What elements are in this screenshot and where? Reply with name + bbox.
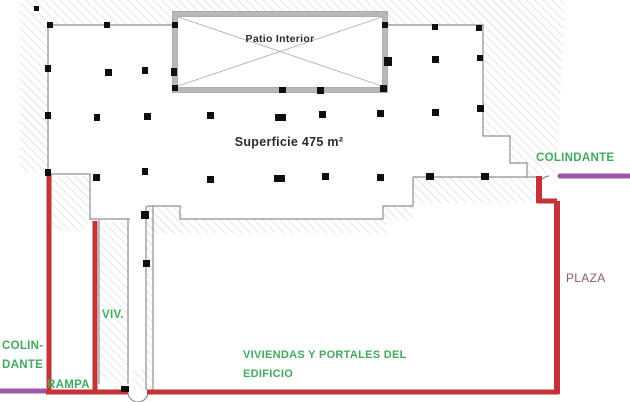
label-viv: VIV.	[102, 309, 124, 321]
structural-column	[105, 69, 112, 76]
structural-column	[104, 22, 110, 28]
structural-column	[476, 25, 482, 31]
hatch-viv-wall-band	[100, 222, 128, 390]
structural-column	[426, 173, 434, 180]
structural-column	[477, 55, 483, 61]
structural-column	[207, 176, 214, 183]
label-patio-interior: Patio Interior	[246, 33, 315, 45]
structural-column	[377, 110, 384, 117]
label-colindante-right: COLINDANTE	[536, 152, 614, 164]
structural-column	[384, 57, 392, 66]
structural-column	[142, 168, 148, 175]
structural-column	[432, 56, 439, 63]
structural-column	[45, 112, 51, 119]
hatch-mid-wall-jamb	[132, 370, 155, 390]
hatch-lower-band-main	[180, 219, 386, 233]
patio-interior-box	[173, 12, 388, 93]
structural-column	[279, 87, 286, 93]
structural-column	[319, 111, 326, 118]
structural-column	[144, 113, 151, 120]
structural-column	[432, 24, 438, 30]
floor-plan-stage: Patio InteriorSuperficie 475 m²COLINDANT…	[0, 0, 630, 402]
label-viviendas-line2: EDIFICIO	[243, 368, 293, 380]
structural-column	[275, 114, 286, 121]
structural-column	[93, 174, 100, 181]
structural-column	[45, 169, 51, 176]
structural-column	[481, 173, 489, 180]
label-colindante-left-line1: COLIN-	[2, 340, 43, 352]
patio-box-wall	[175, 14, 385, 90]
structural-column	[274, 175, 285, 182]
structural-column	[34, 6, 39, 11]
structural-column	[380, 85, 387, 92]
structural-column	[121, 386, 129, 392]
structural-column	[143, 260, 150, 267]
label-superficie: Superficie 475 m²	[235, 135, 344, 149]
label-colindante-left-line2: DANTE	[2, 359, 43, 371]
structural-column	[172, 85, 178, 91]
structural-column	[142, 67, 148, 74]
structural-column	[172, 22, 178, 28]
label-plaza: PLAZA	[566, 271, 606, 285]
structural-column	[477, 105, 484, 112]
structural-column	[207, 112, 214, 119]
structural-column	[171, 68, 177, 76]
label-rampa: RAMPA	[47, 379, 90, 391]
structural-column	[141, 211, 149, 219]
structural-column	[317, 87, 324, 94]
structural-column	[377, 174, 384, 181]
floor-plan-drawing: Patio InteriorSuperficie 475 m²COLINDANT…	[0, 0, 630, 402]
structural-column	[47, 22, 53, 28]
hatch-lower-band-right	[413, 177, 538, 203]
structural-column	[382, 22, 388, 28]
hatch-ramp-band	[52, 176, 90, 232]
hatch-lower-band-step-up	[383, 206, 413, 220]
structural-column	[322, 173, 329, 180]
label-viviendas-line1: VIVIENDAS Y PORTALES DEL	[243, 349, 407, 361]
structural-column	[432, 109, 439, 116]
structural-column	[94, 114, 100, 121]
structural-column	[45, 65, 51, 72]
